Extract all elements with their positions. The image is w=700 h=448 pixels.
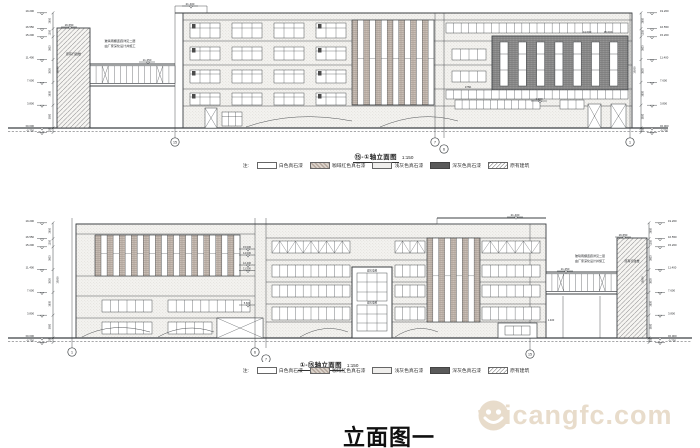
el-W [452, 71, 486, 82]
brick-strip-zone [352, 20, 434, 105]
drawing-sheet: 21.40015761475014.00015.0001.20011.450原有… [0, 0, 700, 448]
svg-text:原有行政楼: 原有行政楼 [66, 51, 81, 56]
svg-text:12.400: 12.400 [243, 261, 251, 265]
svg-text:19200: 19200 [633, 66, 637, 74]
svg-text:-0.750: -0.750 [668, 339, 676, 343]
el-W [455, 100, 540, 109]
title-scale: 1:150 [402, 155, 414, 160]
svg-text:3800: 3800 [650, 323, 653, 329]
swatch-white [257, 162, 277, 169]
svg-text:3.800: 3.800 [27, 101, 34, 105]
svg-text:3800: 3800 [48, 255, 51, 261]
el-R [318, 48, 322, 53]
level-flag: 21.400 [182, 2, 198, 8]
svg-text:19.200: 19.200 [25, 219, 34, 223]
svg-text:4750: 4750 [465, 85, 472, 89]
el-R [192, 94, 196, 99]
swatch-dark-gray [430, 162, 450, 169]
el-R [192, 48, 196, 53]
svg-text:观光电梯: 观光电梯 [367, 269, 378, 273]
svg-text:3.800: 3.800 [668, 311, 675, 315]
el-W [272, 285, 350, 297]
svg-text:16.550: 16.550 [25, 25, 34, 29]
svg-text:1350: 1350 [48, 239, 51, 245]
svg-text:7: 7 [434, 140, 436, 144]
grid-bubble-1: 1 [626, 138, 634, 146]
svg-text:-0.750: -0.750 [660, 129, 668, 133]
swatch-dark-gray [430, 367, 450, 374]
el-W [272, 241, 350, 253]
el-W [274, 47, 304, 60]
glazed-bridge [90, 64, 175, 86]
el-T: 1.400 [548, 318, 555, 322]
svg-text:-0.750: -0.750 [26, 129, 34, 133]
svg-text:21.400: 21.400 [511, 213, 520, 217]
swatch-existing [488, 162, 508, 169]
el-T: 观光电梯 [367, 269, 378, 273]
svg-text:1350: 1350 [650, 239, 653, 245]
smiley-logo-icon [478, 400, 509, 431]
svg-text:19.200: 19.200 [660, 9, 669, 13]
el-T: 由厂家深化设计并施工 [105, 43, 136, 48]
legend-label: 浅灰色真石漆 [394, 367, 423, 374]
svg-text:3800: 3800 [48, 300, 51, 306]
el-T: 玻璃雨棚连廊详见二层 [575, 253, 605, 258]
el-W [357, 273, 387, 301]
svg-text:玻璃雨棚连廊详见二层: 玻璃雨棚连廊详见二层 [105, 38, 136, 43]
sheet-caption: 立面图一 [339, 420, 439, 448]
el-T: 14.000 [583, 30, 592, 34]
svg-text:16.550: 16.550 [660, 25, 669, 29]
svg-text:16.550: 16.550 [668, 235, 677, 239]
swatch-light-gray [372, 367, 392, 374]
svg-text:750: 750 [48, 338, 51, 343]
svg-text:11.500: 11.500 [243, 266, 251, 270]
svg-text:11.400: 11.400 [26, 56, 35, 60]
swatch-light-gray [372, 162, 392, 169]
el-W [560, 100, 584, 109]
svg-text:21.400: 21.400 [186, 2, 195, 6]
el-R [192, 24, 196, 29]
el-W [274, 23, 304, 38]
legend-item: 深灰色真石漆 [430, 367, 481, 374]
svg-text:1: 1 [629, 140, 631, 144]
el-W [452, 49, 486, 60]
el-W [395, 285, 425, 297]
svg-text:14.000: 14.000 [243, 251, 251, 255]
legend-label: 白色真石漆 [279, 162, 303, 169]
svg-text:1350: 1350 [642, 29, 645, 35]
el-W [274, 93, 304, 105]
svg-text:1.400: 1.400 [548, 318, 555, 322]
site-watermark: taicangfc.com [478, 400, 673, 431]
svg-text:1.200: 1.200 [535, 97, 543, 101]
el-T: 4750 [465, 85, 472, 89]
grid-bubble-15: 15 [526, 350, 534, 358]
svg-text:16.650: 16.650 [65, 23, 74, 27]
legend-item: 深灰色真石漆 [430, 162, 481, 169]
svg-text:11.450: 11.450 [561, 267, 570, 271]
existing-building [617, 238, 647, 338]
el-W [482, 307, 540, 320]
el-R [318, 94, 322, 99]
svg-text:15.000: 15.000 [243, 245, 251, 249]
svg-text:2650: 2650 [650, 227, 653, 233]
svg-text:2650: 2650 [642, 17, 645, 23]
svg-text:3800: 3800 [48, 45, 51, 51]
svg-text:3800: 3800 [642, 90, 645, 96]
svg-text:11.450: 11.450 [143, 58, 152, 62]
swatch-existing [488, 367, 508, 374]
el-W [272, 265, 350, 277]
el-W [482, 241, 540, 253]
el-W [272, 307, 350, 320]
grid-bubble-1: 1 [68, 348, 76, 356]
svg-text:3800: 3800 [642, 45, 645, 51]
el-T: 观光电梯 [367, 301, 378, 305]
el-R [192, 71, 196, 76]
el-W [482, 265, 540, 277]
svg-text:19.200: 19.200 [25, 9, 34, 13]
svg-text:7.600: 7.600 [27, 289, 34, 293]
svg-text:由厂家深化设计并施工: 由厂家深化设计并施工 [575, 258, 605, 263]
el-T: 由厂家深化设计并施工 [575, 258, 605, 263]
el-W [102, 300, 152, 312]
legend-label: 白色真石漆 [279, 367, 303, 374]
svg-text:5.600: 5.600 [244, 301, 251, 305]
svg-text:玻璃雨棚连廊详见二层: 玻璃雨棚连廊详见二层 [575, 253, 605, 258]
svg-text:3800: 3800 [650, 300, 653, 306]
svg-text:1350: 1350 [48, 29, 51, 35]
el-W [274, 70, 304, 83]
svg-text:3800: 3800 [650, 255, 653, 261]
el-W [168, 300, 250, 312]
svg-text:3800: 3800 [642, 68, 645, 74]
el-W [446, 23, 628, 33]
svg-text:750: 750 [650, 338, 653, 343]
svg-text:16.550: 16.550 [25, 235, 34, 239]
svg-text:15.000: 15.000 [604, 30, 613, 34]
svg-text:19200: 19200 [56, 276, 60, 284]
svg-text:16.650: 16.650 [619, 233, 628, 237]
svg-text:15.200: 15.200 [25, 33, 34, 37]
legend-label: 咖啡红色真石漆 [332, 367, 366, 374]
swatch-white [257, 367, 277, 374]
svg-text:±0.000: ±0.000 [668, 334, 677, 338]
el-W [357, 305, 387, 331]
el-R [318, 71, 322, 76]
entrance-lattice [217, 318, 263, 338]
grid-bubble-7: 7 [431, 138, 439, 146]
svg-text:7.600: 7.600 [668, 289, 675, 293]
legend-label: 浅灰色真石漆 [394, 162, 423, 169]
el-W [395, 307, 425, 320]
legend-item: 白色真石漆 [257, 162, 303, 169]
svg-text:观光电梯: 观光电梯 [367, 301, 378, 305]
legend-note-label: 注: [243, 162, 249, 169]
el-W [232, 93, 262, 105]
svg-text:750: 750 [642, 128, 645, 133]
legend-label: 原有建筑 [510, 367, 529, 374]
svg-text:14.000: 14.000 [583, 30, 592, 34]
bottom-elevation-drawing: 21.4001671515.00014.00012.40011.5005.600… [0, 210, 700, 362]
svg-text:3.800: 3.800 [27, 311, 34, 315]
svg-text:2650: 2650 [48, 227, 51, 233]
svg-text:19200: 19200 [56, 66, 60, 74]
svg-text:3800: 3800 [650, 278, 653, 284]
legend-bottom: 注: 白色真石漆 咖啡红色真石漆 浅灰色真石漆 深灰色真石漆 原有建筑 [221, 367, 551, 374]
el-W [505, 326, 530, 335]
svg-text:3800: 3800 [48, 68, 51, 74]
el-R [318, 24, 322, 29]
svg-text:3800: 3800 [642, 113, 645, 119]
el-W [482, 285, 540, 297]
svg-text:11.400: 11.400 [660, 56, 669, 60]
entrance-door [588, 104, 601, 128]
svg-text:15.200: 15.200 [660, 33, 669, 37]
entrance-door [611, 104, 626, 128]
svg-text:±0.000: ±0.000 [660, 124, 669, 128]
el-W [395, 265, 425, 277]
legend-label: 原有建筑 [510, 162, 529, 169]
glazed-bridge [546, 272, 617, 294]
svg-text:3800: 3800 [48, 90, 51, 96]
svg-text:15: 15 [528, 352, 532, 356]
el-W [222, 112, 242, 126]
svg-text:19200: 19200 [641, 276, 645, 284]
svg-text:11.400: 11.400 [26, 266, 35, 270]
legend-item: 白色真石漆 [257, 367, 303, 374]
el-W [232, 47, 262, 60]
dimension-stack-left: 19.20016.55015.20011.4007.6003.800±0.000… [25, 9, 59, 135]
swatch-brick [310, 162, 330, 169]
svg-text:3800: 3800 [48, 113, 51, 119]
top-elevation-drawing: 21.40015761475014.00015.0001.20011.450原有… [0, 0, 700, 158]
svg-text:3.800: 3.800 [660, 101, 667, 105]
legend-item: 原有建筑 [488, 162, 529, 169]
svg-text:原有行政楼: 原有行政楼 [624, 258, 639, 263]
el-W [232, 70, 262, 83]
brick-strip-zone [95, 235, 240, 276]
legend-item: 浅灰色真石漆 [372, 162, 423, 169]
svg-text:7.600: 7.600 [27, 79, 34, 83]
svg-text:2650: 2650 [48, 17, 51, 23]
el-V: 11.450 [139, 58, 155, 64]
grid-bubble-15: 15 [171, 138, 179, 146]
legend-item: 浅灰色真石漆 [372, 367, 423, 374]
svg-text:11.400: 11.400 [668, 266, 677, 270]
el-T: 原有行政楼 [66, 51, 81, 56]
svg-text:15.200: 15.200 [25, 243, 34, 247]
el-T: 玻璃雨棚连廊详见二层 [105, 38, 136, 43]
swatch-brick [310, 367, 330, 374]
svg-text:750: 750 [48, 128, 51, 133]
svg-text:7.600: 7.600 [660, 79, 667, 83]
svg-text:3800: 3800 [48, 278, 51, 284]
el-T: 原有行政楼 [624, 258, 639, 263]
svg-text:19.200: 19.200 [668, 219, 677, 223]
svg-text:1: 1 [71, 350, 73, 354]
el-W [395, 241, 425, 253]
legend-item: 咖啡红色真石漆 [310, 367, 366, 374]
existing-building [57, 28, 90, 128]
svg-text:15: 15 [173, 140, 177, 144]
legend-note-label: 注: [243, 367, 249, 374]
svg-text:3800: 3800 [48, 323, 51, 329]
svg-text:±0.000: ±0.000 [25, 334, 34, 338]
svg-text:±0.000: ±0.000 [25, 124, 34, 128]
legend-label: 深灰色真石漆 [452, 162, 481, 169]
svg-text:15.200: 15.200 [668, 243, 677, 247]
side-door [205, 108, 217, 128]
el-T: 15.000 [604, 30, 613, 34]
legend-item: 咖啡红色真石漆 [310, 162, 366, 169]
dimension-stack-left: 19.20016.55015.20011.4007.6003.800±0.000… [25, 219, 59, 345]
el-W [232, 23, 262, 38]
legend-label: 咖啡红色真石漆 [332, 162, 366, 169]
svg-text:-0.750: -0.750 [26, 339, 34, 343]
svg-text:由厂家深化设计并施工: 由厂家深化设计并施工 [105, 43, 136, 48]
brick-piers [427, 238, 480, 322]
legend-item: 原有建筑 [488, 367, 529, 374]
legend-top: 注: 白色真石漆 咖啡红色真石漆 浅灰色真石漆 深灰色真石漆 原有建筑 [221, 162, 551, 169]
legend-label: 深灰色真石漆 [452, 367, 481, 374]
dimension-stack-right: 19.20016.55015.20011.4007.6003.800±0.000… [633, 9, 669, 135]
